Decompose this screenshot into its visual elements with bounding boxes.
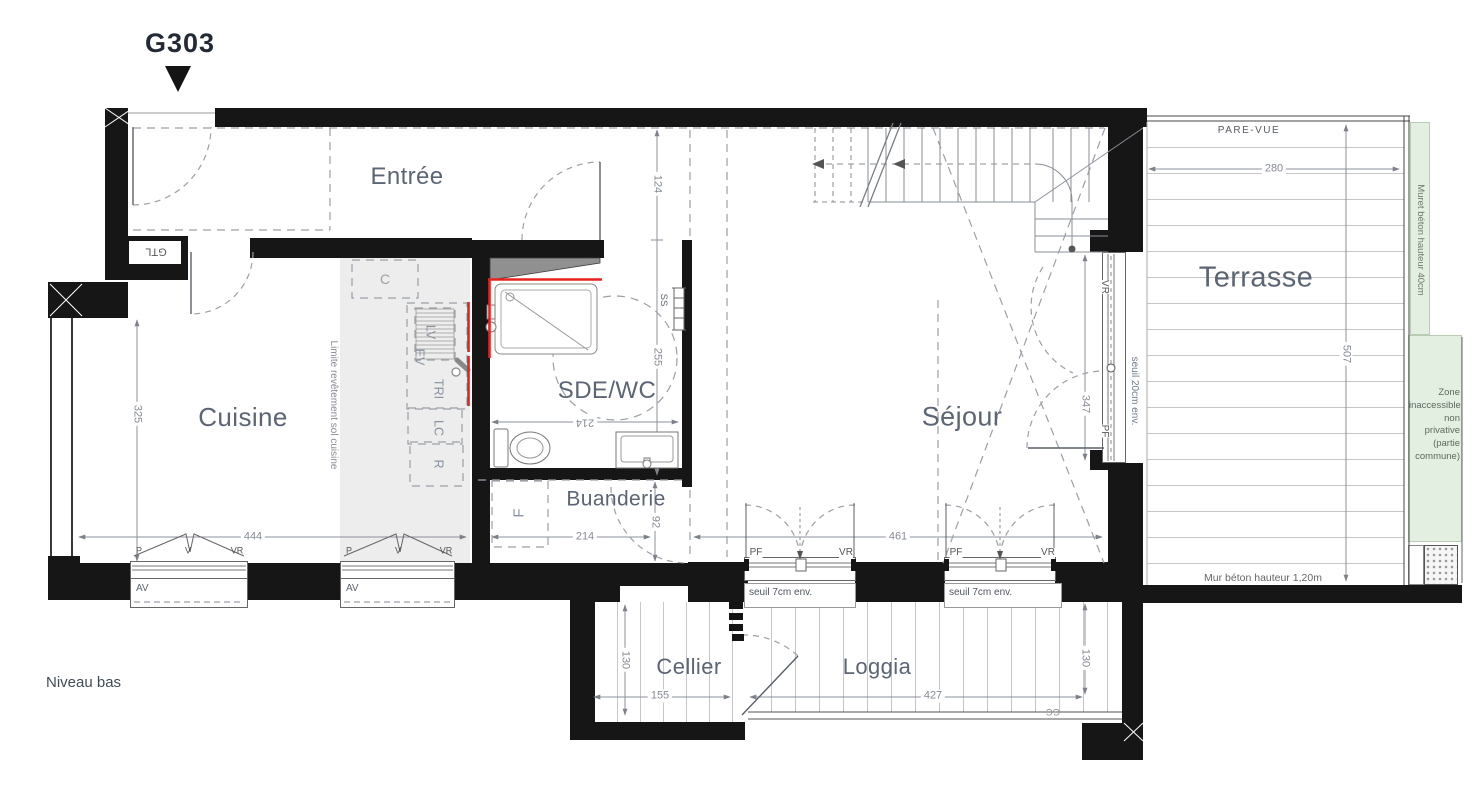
toilet-icon bbox=[494, 429, 550, 467]
dim-cellier-height: 130 bbox=[619, 648, 632, 672]
room-label-terrasse: Terrasse bbox=[1199, 264, 1313, 293]
annotation-muret-beton: Muret béton hauteur 40cm bbox=[1415, 184, 1425, 295]
annotation-seuil-7cm-2: seuil 7cm env. bbox=[949, 588, 1012, 598]
dim-cuisine-width: 444 bbox=[241, 531, 265, 544]
floor-plan: G303 Niveau bas Entrée Cuisine SDE/WC Bu… bbox=[0, 0, 1480, 800]
tag-p-1: P bbox=[136, 547, 142, 556]
room-label-buanderie: Buanderie bbox=[566, 489, 665, 510]
tag-av-2: AV bbox=[346, 584, 359, 594]
unit-label: G303 bbox=[145, 30, 215, 57]
annotation-seuil-7cm-1: seuil 7cm env. bbox=[749, 588, 812, 598]
room-label-loggia: Loggia bbox=[843, 656, 911, 678]
level-label: Niveau bas bbox=[46, 675, 121, 690]
room-label-cellier: Cellier bbox=[656, 656, 721, 678]
tag-vr-1: VR bbox=[231, 547, 244, 556]
annotation-zone-inaccessible: Zone inaccessible non privative (partie … bbox=[1409, 387, 1460, 464]
room-label-sejour: Séjour bbox=[922, 404, 1002, 431]
dim-terrasse-width: 280 bbox=[1262, 163, 1286, 176]
tag-v-2: V bbox=[395, 547, 401, 556]
dim-sde-height: 255 bbox=[651, 345, 664, 369]
room-label-entree: Entrée bbox=[370, 165, 443, 189]
dim-loggia-height: 130 bbox=[1079, 646, 1092, 670]
dim-loggia-width: 427 bbox=[921, 690, 945, 703]
tag-vr-2: VR bbox=[440, 547, 453, 556]
duct-icon bbox=[490, 258, 600, 280]
dim-cellier-width: 155 bbox=[648, 690, 672, 703]
room-label-sde-wc: SDE/WC bbox=[558, 379, 656, 403]
tag-lc: LC bbox=[432, 420, 445, 436]
tag-v-1: V bbox=[185, 547, 191, 556]
dim-sejour-window-height: 347 bbox=[1079, 392, 1092, 416]
tag-lv: LV bbox=[424, 325, 437, 339]
annotation-seuil-20cm: seuil 20cm env. bbox=[1129, 357, 1139, 426]
tag-pf-1: PF bbox=[750, 548, 763, 558]
dim-sde-width: 214 bbox=[573, 416, 597, 429]
unit-marker-icon bbox=[165, 66, 191, 92]
dim-terrasse-height: 507 bbox=[1340, 342, 1353, 366]
tag-ev: EV bbox=[413, 349, 426, 366]
dashed-guides bbox=[133, 128, 1111, 602]
radiator-icon bbox=[672, 288, 686, 330]
tag-r: R bbox=[432, 459, 445, 468]
tag-av-1: AV bbox=[136, 584, 149, 594]
faucet-icon bbox=[452, 360, 468, 376]
tag-pf-2: PF bbox=[950, 548, 963, 558]
tag-gtl: GTL bbox=[145, 246, 166, 257]
dim-sejour-width: 461 bbox=[886, 531, 910, 544]
tag-pf-3: PF bbox=[1099, 425, 1109, 438]
annotation-pare-vue: PARE-VUE bbox=[1215, 126, 1283, 136]
shower-icon bbox=[486, 284, 597, 354]
sink-icon bbox=[616, 432, 678, 468]
annotation-mur-beton: Mur béton hauteur 1,20m bbox=[1204, 573, 1322, 584]
room-label-cuisine: Cuisine bbox=[198, 404, 288, 430]
dim-buanderie-height: 92 bbox=[649, 513, 662, 531]
tag-vr-4: VR bbox=[1041, 548, 1055, 558]
tag-vr-3: VR bbox=[839, 548, 853, 558]
annotation-limite-revetement: Limite revêtement sol cuisine bbox=[328, 341, 338, 470]
tag-fridge-f: F bbox=[512, 508, 527, 517]
tag-vr-5: VR bbox=[1099, 280, 1109, 294]
plan-linework bbox=[0, 0, 1480, 800]
loggia-door-frame-dashes bbox=[729, 602, 744, 641]
tag-ss: SS bbox=[658, 294, 668, 307]
hinge-dot bbox=[1107, 364, 1115, 372]
dim-buanderie-width: 214 bbox=[573, 531, 597, 544]
tag-gc: GC bbox=[1046, 706, 1060, 716]
dim-cuisine-height: 325 bbox=[131, 402, 144, 426]
tag-p-2: P bbox=[346, 547, 352, 556]
dim-entree-passage: 124 bbox=[651, 172, 664, 196]
staircase-icon bbox=[813, 123, 1143, 252]
tag-tri: TRI bbox=[432, 379, 445, 399]
tag-closet: C bbox=[380, 272, 390, 286]
